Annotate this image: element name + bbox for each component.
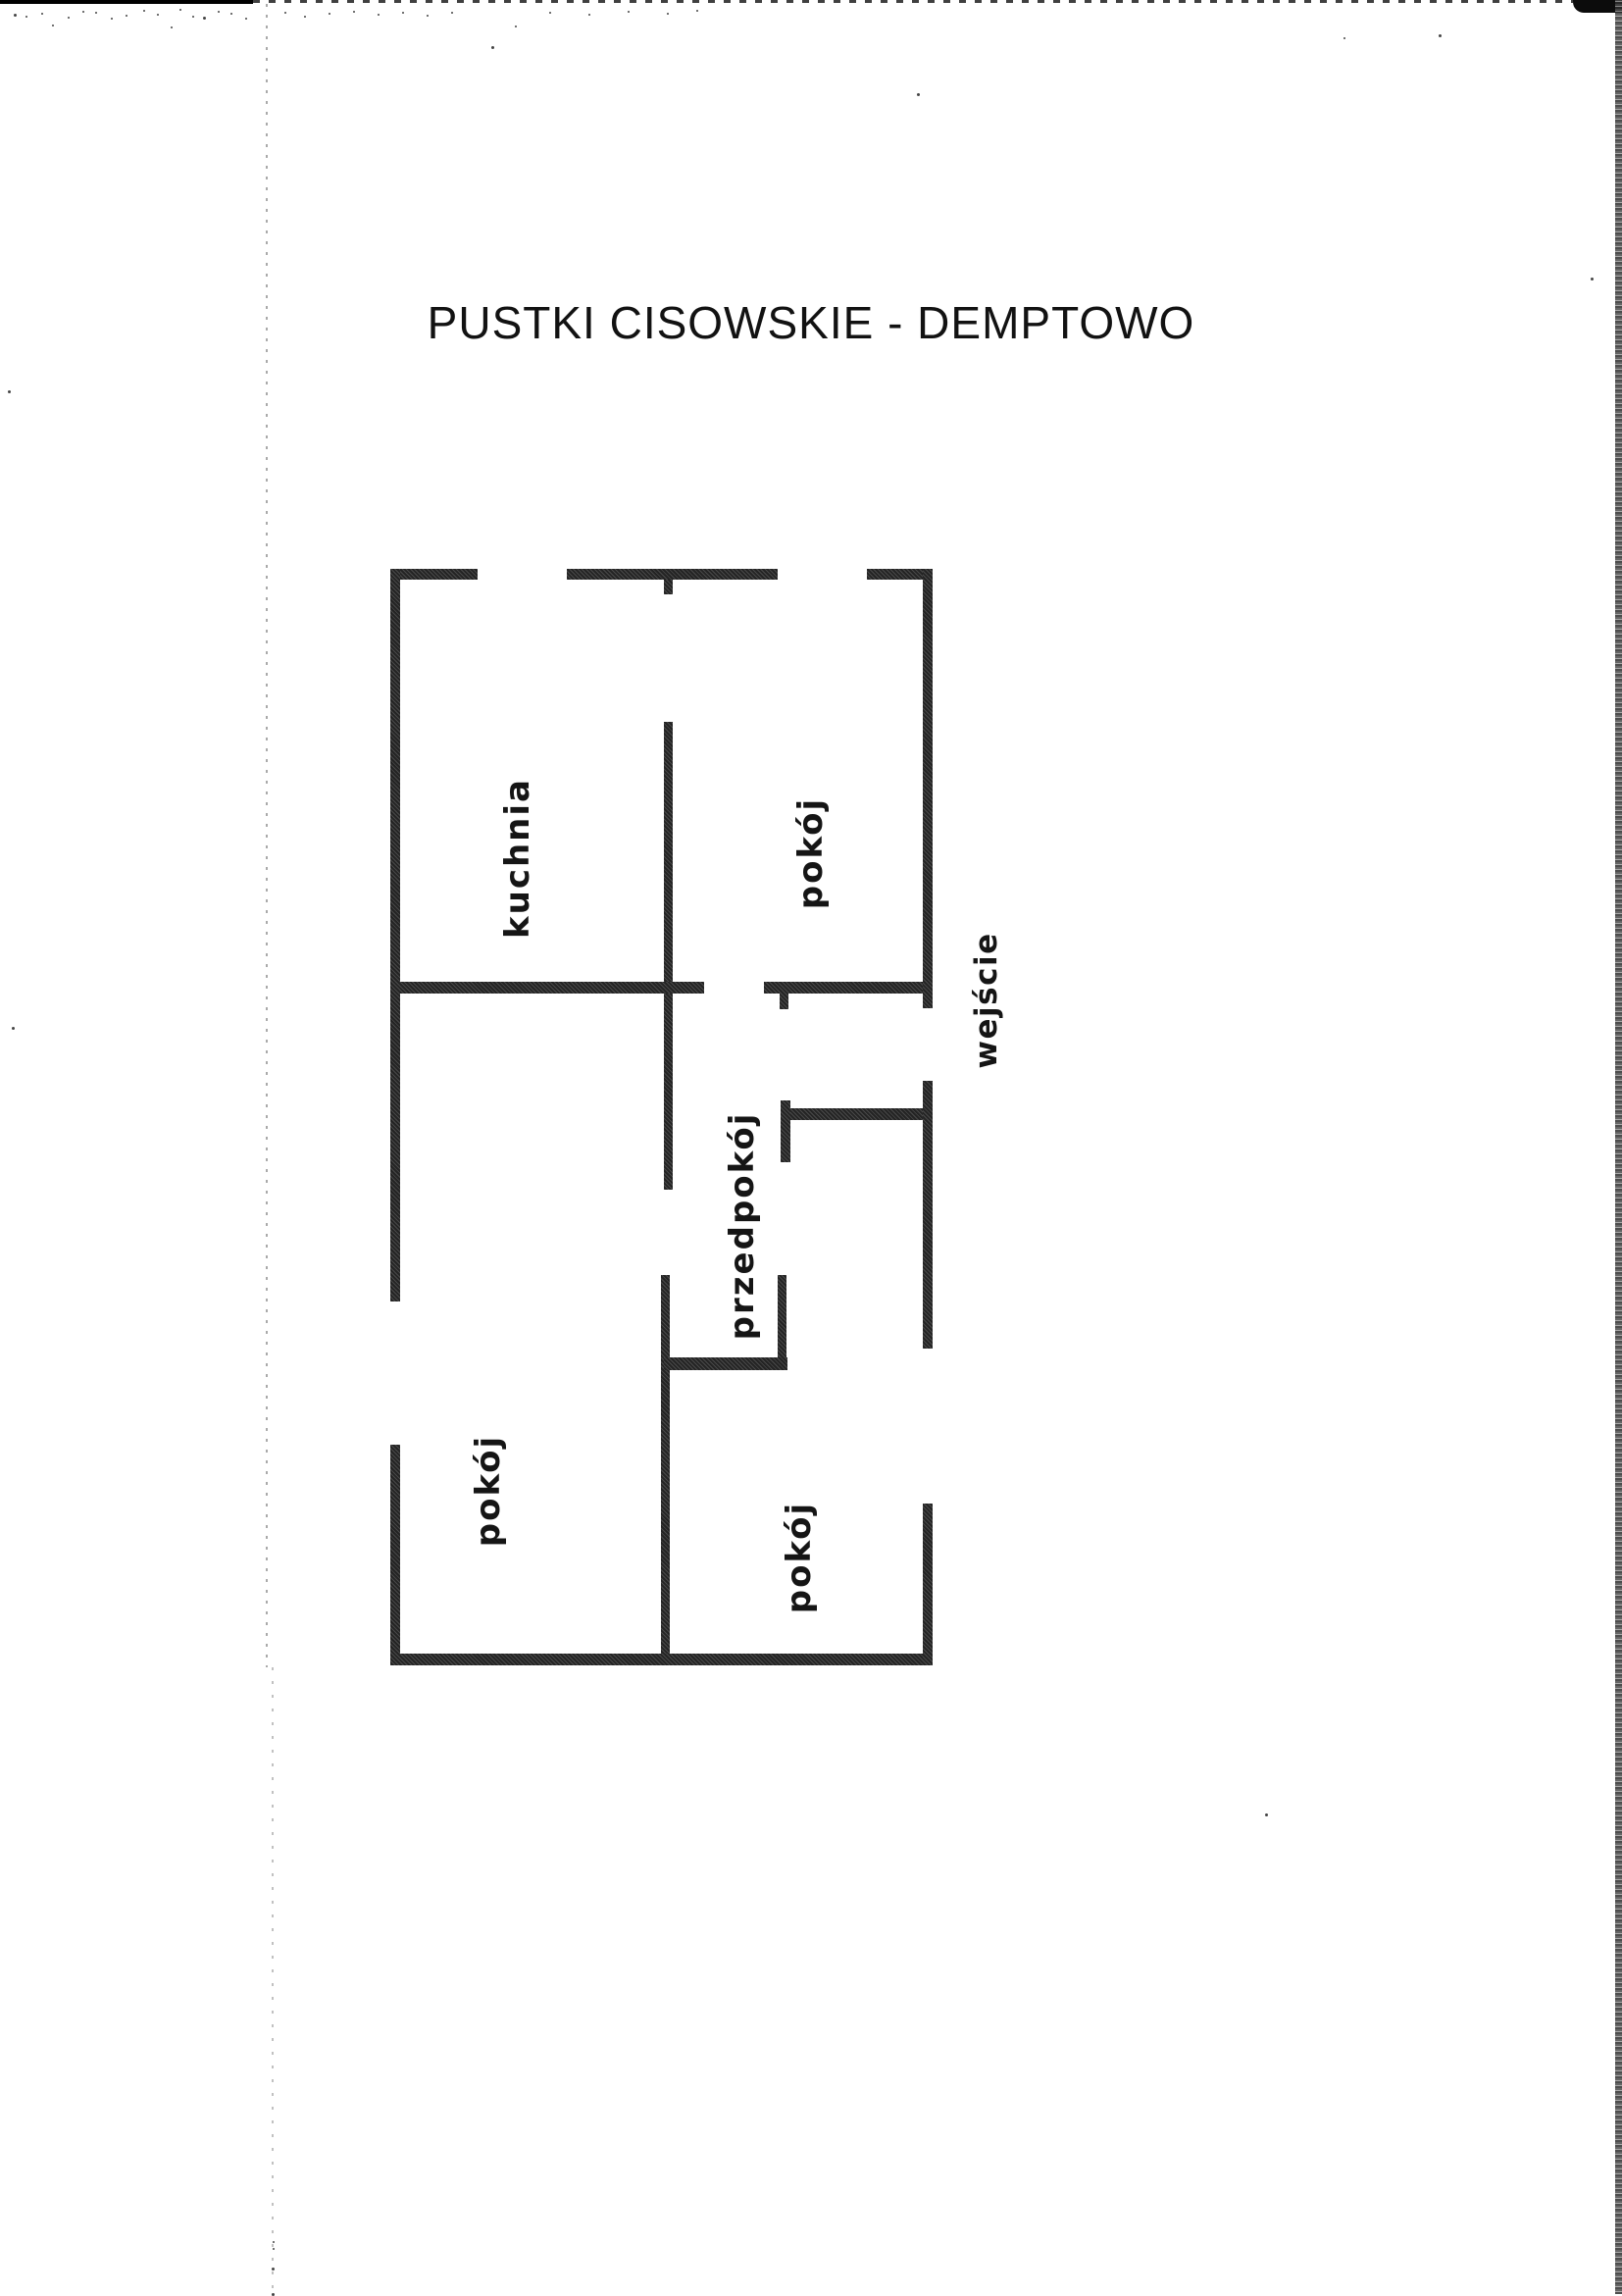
wall-outer-right-upper [923, 569, 933, 1008]
wall-divider-kitchen-room [664, 722, 673, 982]
wall-outer-right-lower [923, 1504, 933, 1665]
wall-corridor-jamb [781, 1100, 790, 1162]
room-label-pokoj-bottom-right: pokój [780, 1502, 819, 1613]
wall-outer-top-left [391, 569, 478, 580]
room-label-przedpokoj: przedpokój [723, 1112, 762, 1341]
wall-closet-bottom [664, 1357, 787, 1370]
wall-room-top-right-bottom [764, 982, 923, 994]
wall-kitchen-bottom [390, 982, 704, 994]
scanned-document-page: PUSTKI CISOWSKIE - DEMPTOWO kuchnia pokó… [0, 0, 1622, 2294]
wall-divider-lower-rooms [661, 1275, 670, 1654]
room-label-pokoj-bottom-left: pokój [469, 1435, 508, 1547]
wall-closet-right [778, 1275, 786, 1363]
entrance-label: wejście [969, 932, 1004, 1068]
wall-outer-left-lower [390, 1445, 400, 1665]
wall-divider-top-jamb [664, 580, 673, 594]
wall-outer-bottom [390, 1654, 933, 1665]
wall-outer-left-upper [390, 569, 400, 1301]
wall-entry-door-jamb [780, 994, 788, 1009]
floor-plan: kuchnia pokój przedpokój pokój pokój wej… [0, 0, 1622, 2294]
wall-outer-right-middle [923, 1081, 933, 1349]
room-label-pokoj-top-right: pokój [791, 797, 831, 909]
wall-outer-top-middle [567, 569, 778, 580]
wall-corridor-bottom [785, 1108, 923, 1120]
wall-hall-left [664, 994, 673, 1190]
room-label-kuchnia: kuchnia [498, 778, 537, 939]
